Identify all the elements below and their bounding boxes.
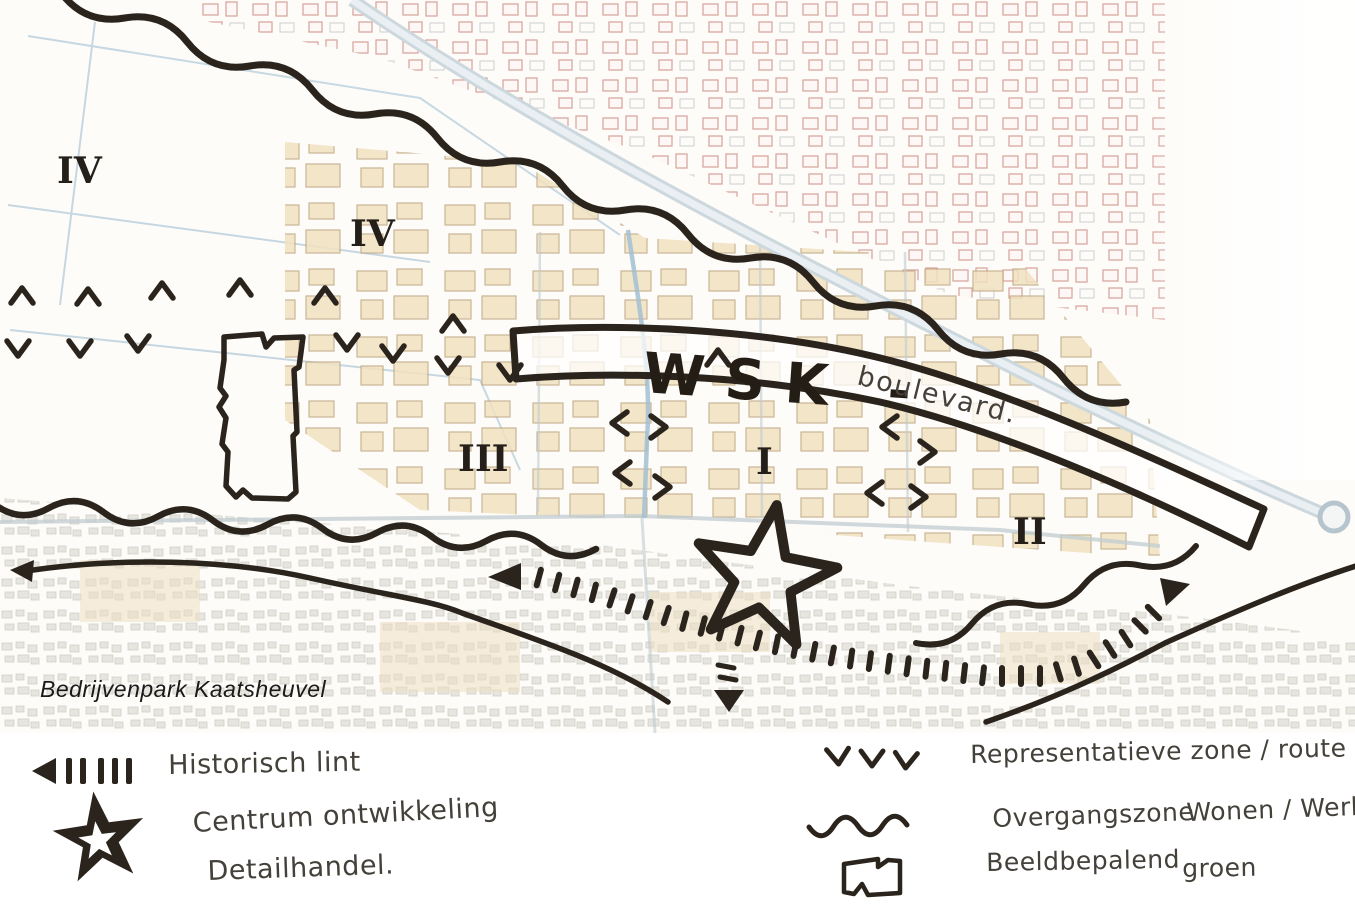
- legend-dash: [126, 758, 132, 784]
- centre-star-symbol: [52, 786, 152, 892]
- legend-label-centrum-ontwikkeling: Centrum ontwikkeling: [192, 792, 499, 839]
- legend-chevron: [861, 751, 883, 766]
- legend-dash: [80, 758, 86, 784]
- map-canvas: IV IV III I II WSK - boulevard.: [0, 0, 1355, 733]
- historic-line-dash: [775, 636, 778, 652]
- branch-dash: [720, 677, 736, 680]
- legend-dash: [66, 758, 72, 784]
- legend-label-detailhandel: Detailhandel.: [207, 849, 395, 886]
- historic-line-dash: [719, 623, 723, 638]
- beige-patch: [80, 560, 200, 622]
- historic-line-dash: [944, 663, 946, 679]
- map-area: IV IV III I II WSK - boulevard. Bedrijve…: [0, 0, 1355, 733]
- historic-line-dash: [982, 667, 984, 683]
- historic-line-dash: [701, 618, 705, 634]
- legend-chevron: [895, 752, 918, 768]
- roundabout: [1320, 503, 1348, 531]
- map-title: Bedrijvenpark Kaatsheuvel: [40, 676, 326, 703]
- zone-label-IV-east: IV: [350, 213, 396, 255]
- historic-line-dash: [963, 665, 965, 681]
- historic-line-dash: [888, 656, 890, 672]
- legend-label-groen: groen: [1182, 853, 1257, 883]
- defining-green-symbol: [838, 848, 922, 908]
- scanned-planning-map-page: IV IV III I II WSK - boulevard. Bedrijve…: [0, 0, 1355, 915]
- zone-label-III: III: [458, 438, 509, 480]
- legend-chevron: [827, 748, 850, 764]
- historic-line-dash: [756, 633, 760, 649]
- historic-line-dash: [869, 653, 871, 669]
- legend-label-historisch-lint: Historisch lint: [168, 747, 361, 781]
- historic-line-dash: [537, 570, 541, 586]
- map-fade-right: [1145, 0, 1355, 480]
- legend-dash: [98, 758, 104, 784]
- historic-line-dash: [794, 640, 797, 656]
- legend-dash: [112, 758, 118, 784]
- zone-label-I: I: [756, 441, 773, 483]
- legend-star-inner: [78, 821, 116, 859]
- legend-label-beeldbepalend: Beeldbepalend: [986, 845, 1180, 877]
- branch-dash: [718, 665, 734, 668]
- beige-patch: [1000, 632, 1100, 684]
- historic-line-dash: [926, 661, 928, 677]
- transition-zone-symbol: [804, 804, 914, 844]
- historic-line-dash: [738, 628, 742, 644]
- historic-line-dash: [682, 613, 686, 629]
- legend-wave: [809, 816, 907, 835]
- historic-line-dash: [907, 658, 909, 674]
- legend-green-outline: [844, 859, 900, 895]
- legend-star-outer: [53, 792, 143, 882]
- historic-line-dash: [812, 644, 815, 660]
- historic-line-dash: [592, 585, 596, 601]
- legend-label-overgangszone: Overgangszone: [992, 797, 1195, 833]
- zone-label-IV-west: IV: [57, 150, 103, 192]
- beige-patch: [380, 622, 520, 692]
- historic-line-dash: [850, 651, 852, 667]
- representative-zone-symbol: [820, 740, 924, 778]
- legend-label-wonen-werken: Wonen / Werken: [1186, 791, 1355, 827]
- legend-arrowhead: [32, 758, 56, 784]
- historic-line-dash: [573, 580, 577, 595]
- legend-label-representatieve-zone: Representatieve zone / route: [970, 733, 1347, 769]
- historic-line-symbol: [30, 754, 142, 788]
- zone-label-II: II: [1013, 511, 1047, 553]
- historic-line-dash: [555, 575, 559, 590]
- historic-line-dash: [831, 648, 834, 664]
